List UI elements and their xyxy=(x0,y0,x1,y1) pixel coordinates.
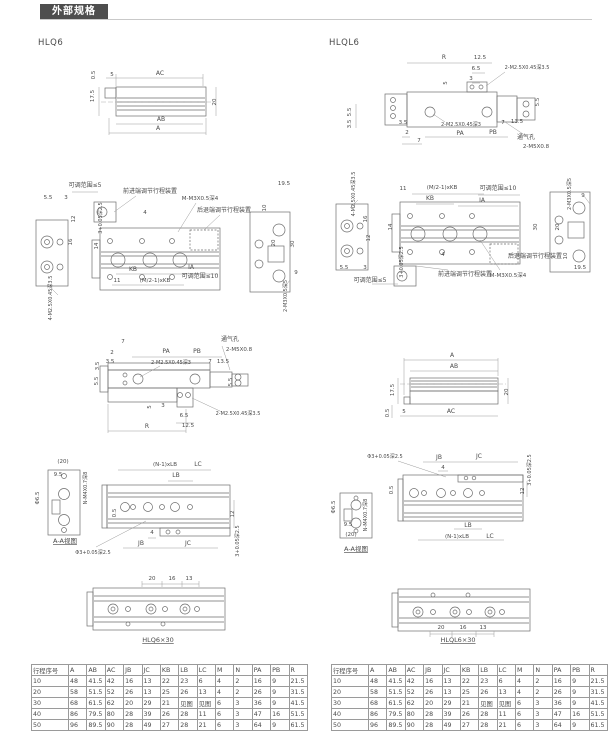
dim-label: 5 xyxy=(402,409,406,415)
dim-label: (M/2-1)xKB xyxy=(427,185,458,191)
dimension-table: 行程序号AABACJBJCKBLBLCMNPAPBR104841.5421613… xyxy=(31,664,308,731)
table-cell: 42 xyxy=(405,676,423,687)
table-cell: 2 xyxy=(234,687,252,698)
table-cell: 41.5 xyxy=(387,676,405,687)
dim-label: 2 xyxy=(405,130,409,136)
dim-label: 4 xyxy=(441,252,445,258)
dim-label: 20 xyxy=(438,625,445,631)
dim-label: 5.5 xyxy=(94,376,100,385)
dim-label: 可调范围≤5 xyxy=(354,276,387,284)
table-cell: 89.5 xyxy=(87,720,105,731)
table-cell: 20 xyxy=(124,698,142,709)
table-cell: 3 xyxy=(234,720,252,731)
hlq6-stroke30-view: 201613HLQ6×30 xyxy=(85,568,240,648)
dim-label: 5.5 xyxy=(347,107,353,116)
dim-label: KB xyxy=(426,195,434,202)
header-rule xyxy=(40,19,592,20)
dim-label: 3+0.05深2.5 xyxy=(398,246,405,277)
table-cell: 90 xyxy=(405,720,423,731)
dim-label: 3.5 xyxy=(399,120,408,126)
table-header-cell: JC xyxy=(142,665,160,676)
dim-label: Φ3+0.05深2.5 xyxy=(75,549,110,556)
dim-label: PB xyxy=(489,129,497,136)
table-cell: 22 xyxy=(160,676,178,687)
hlql6-side-view: AAB17.5200.55AC xyxy=(372,335,611,440)
hlql6-stroke30-view: 201613HLQL6×30 xyxy=(388,565,543,650)
dim-label: 4 xyxy=(441,465,445,471)
table-cell: 6 xyxy=(516,709,534,720)
table-cell: 39 xyxy=(442,709,460,720)
dim-label: 2-M3X0.5深5 xyxy=(282,280,289,312)
table-cell: 10 xyxy=(332,676,369,687)
table-cell: 10 xyxy=(32,676,69,687)
table-cell: 13 xyxy=(442,687,460,698)
dim-label: 7 xyxy=(501,120,505,126)
dim-label: 通气孔 xyxy=(517,133,535,141)
table-header-cell: JB xyxy=(124,665,142,676)
table-cell: 50 xyxy=(332,720,369,731)
table-header-cell: PB xyxy=(271,665,289,676)
table-cell: 68 xyxy=(369,698,387,709)
table-cell: 见图 xyxy=(179,698,197,709)
table-cell: 28 xyxy=(124,709,142,720)
dim-label: 5 xyxy=(147,405,153,409)
dim-label: 3 xyxy=(363,265,367,271)
table-cell: 21 xyxy=(197,720,215,731)
table-header-cell: 行程序号 xyxy=(332,665,369,676)
dim-label: 后退端调节行程装置 xyxy=(197,206,251,214)
dim-label: 9 xyxy=(294,270,298,276)
dim-label: 2-M2.5X0.45深3.5 xyxy=(505,64,550,71)
dim-label: 10 xyxy=(563,252,569,259)
table-cell: 49 xyxy=(442,720,460,731)
dim-label: 2 xyxy=(110,350,114,356)
table-cell: 6 xyxy=(216,720,234,731)
dim-label: PB xyxy=(193,348,201,355)
dim-label: 5.5 xyxy=(340,265,349,271)
table-cell: 96 xyxy=(69,720,87,731)
table-cell: 9 xyxy=(271,698,289,709)
table-cell: 48 xyxy=(369,676,387,687)
table-header-cell: AC xyxy=(105,665,123,676)
dim-label: 3+0.05深2.5 xyxy=(234,525,241,556)
dim-label: 可调范围≤10 xyxy=(480,184,517,192)
dim-label: 5.5 xyxy=(228,377,234,386)
table-cell: 4 xyxy=(516,687,534,698)
dim-label: AC xyxy=(156,70,164,77)
table-cell: 86 xyxy=(69,709,87,720)
dim-label: 20 xyxy=(149,576,156,582)
dim-label: JC xyxy=(475,453,482,460)
dim-label: Φ6.5 xyxy=(331,500,337,514)
dim-label: A-A视图 xyxy=(53,536,77,545)
dim-label: 13.5 xyxy=(217,359,230,365)
dim-label: 16 xyxy=(68,238,74,245)
table-cell: 3 xyxy=(534,709,552,720)
table-header-row: 行程序号AABACJBJCKBLBLCMNPAPBR xyxy=(332,665,608,676)
dim-label: R xyxy=(442,54,446,61)
table-row: 104841.5421613222364216921.5 xyxy=(32,676,308,687)
table-cell: 36 xyxy=(552,698,570,709)
dim-label: (N-1)xLB xyxy=(445,534,469,540)
table-cell: 21.5 xyxy=(289,676,308,687)
dim-label: 20 xyxy=(212,98,218,105)
table-header-cell: LC xyxy=(497,665,515,676)
table-cell: 9 xyxy=(571,720,589,731)
dim-label: 20 xyxy=(271,239,277,246)
dim-label: 17.5 xyxy=(390,383,396,396)
table-cell: 26 xyxy=(479,687,497,698)
dim-label: (N-1)xLB xyxy=(153,462,177,468)
table-cell: 64 xyxy=(252,720,270,731)
table-cell: 86 xyxy=(369,709,387,720)
dim-label: 4-M2.5X0.45深3.5 xyxy=(350,172,357,217)
dim-label: 0.5 xyxy=(389,485,395,494)
dim-label: 16 xyxy=(460,625,467,631)
table-cell: 52 xyxy=(105,687,123,698)
dim-label: 20 xyxy=(504,388,510,395)
table-cell: 9 xyxy=(271,720,289,731)
table-cell: 64 xyxy=(552,720,570,731)
table-cell: 21 xyxy=(460,698,478,709)
dim-label: 10 xyxy=(262,204,268,211)
table-cell: 6 xyxy=(516,698,534,709)
table-cell: 16 xyxy=(552,676,570,687)
table-cell: 28 xyxy=(124,720,142,731)
table-cell: 9 xyxy=(571,698,589,709)
dim-label: 13.5 xyxy=(511,119,524,125)
dim-label: 16 xyxy=(169,576,176,582)
table-header-cell: M xyxy=(216,665,234,676)
table-cell: 4 xyxy=(216,676,234,687)
dim-label: 19.5 xyxy=(278,181,291,187)
table-cell: 27 xyxy=(160,720,178,731)
dim-label: 12.5 xyxy=(182,423,195,429)
table-row: 408679.580283926281163471651.5 xyxy=(32,709,308,720)
table-cell: 52 xyxy=(405,687,423,698)
table-header-cell: PB xyxy=(571,665,589,676)
table-cell: 28 xyxy=(479,709,497,720)
dim-label: 4 xyxy=(143,210,147,216)
table-cell: 30 xyxy=(332,698,369,709)
table-cell: 62 xyxy=(105,698,123,709)
table-cell: 26 xyxy=(252,687,270,698)
dim-label: 9.5 xyxy=(344,522,353,528)
section-header: 外部规格 xyxy=(40,4,108,20)
table-cell: 25 xyxy=(160,687,178,698)
table-cell: 40 xyxy=(332,709,369,720)
hlq6-dimension-table: 行程序号AABACJBJCKBLBLCMNPAPBR104841.5421613… xyxy=(31,664,308,731)
table-cell: 13 xyxy=(142,676,160,687)
dim-label: IA xyxy=(479,197,486,204)
table-cell: 23 xyxy=(479,676,497,687)
dim-label: 16 xyxy=(363,215,369,222)
dim-label: 前进端调节行程装置 xyxy=(438,270,492,278)
table-header-cell: JC xyxy=(442,665,460,676)
table-cell: 41.5 xyxy=(589,698,608,709)
dim-label: 后退端调节行程装置 xyxy=(508,252,562,260)
dim-label: 6.5 xyxy=(180,413,189,419)
dim-label: JB xyxy=(435,454,442,461)
dim-label: N-M4X0.7深8 xyxy=(82,472,89,505)
table-cell: 61.5 xyxy=(589,720,608,731)
dim-label: 2-M3X0.5深5 xyxy=(566,178,573,210)
dim-label: (M/2-1)xKB xyxy=(140,278,171,284)
table-cell: 3 xyxy=(234,698,252,709)
table-cell: 16 xyxy=(571,709,589,720)
dim-label: 4 xyxy=(150,530,154,536)
table-cell: 51.5 xyxy=(589,709,608,720)
table-header-cell: PA xyxy=(552,665,570,676)
table-cell: 26 xyxy=(552,687,570,698)
table-header-row: 行程序号AABACJBJCKBLBLCMNPAPBR xyxy=(32,665,308,676)
table-cell: 27 xyxy=(460,720,478,731)
table-cell: 6 xyxy=(516,720,534,731)
dim-label: JC xyxy=(184,540,191,547)
dim-label: 可调范围≤10 xyxy=(182,272,219,280)
table-cell: 见图 xyxy=(197,698,215,709)
table-header-cell: A xyxy=(69,665,87,676)
dim-label: 7 xyxy=(208,359,212,365)
hlql6-dimension-table: 行程序号AABACJBJCKBLBLCMNPAPBR104841.5421613… xyxy=(331,664,608,731)
dim-label: LC xyxy=(194,461,202,468)
table-cell: 23 xyxy=(179,676,197,687)
dim-label: 5.5 xyxy=(535,97,541,106)
dim-label: 3 xyxy=(469,76,473,82)
dim-label: HLQL6×30 xyxy=(440,636,475,644)
dim-label: 4-M2.5X0.45深3.5 xyxy=(47,276,54,321)
dim-label: 13 xyxy=(186,576,193,582)
table-cell: 20 xyxy=(332,687,369,698)
table-header-cell: LC xyxy=(197,665,215,676)
table-header-cell: AB xyxy=(387,665,405,676)
dim-label: A xyxy=(450,352,455,359)
table-header-cell: KB xyxy=(160,665,178,676)
dim-label: 3+0.05深2.5 xyxy=(526,454,533,485)
dim-label: 5.5 xyxy=(44,195,53,201)
dim-label: JB xyxy=(137,540,144,547)
dim-label: 12.5 xyxy=(474,55,487,61)
table-header-cell: N xyxy=(534,665,552,676)
dim-label: 5 xyxy=(110,72,114,78)
dim-label: 12 xyxy=(520,488,526,495)
table-row: 509689.59028492728216364961.5 xyxy=(332,720,608,731)
dim-label: HLQ6×30 xyxy=(142,636,173,644)
table-cell: 3 xyxy=(234,709,252,720)
dim-label: 2-M5X0.8 xyxy=(226,347,253,353)
dim-label: A-A视图 xyxy=(344,544,368,553)
table-cell: 80 xyxy=(105,709,123,720)
section-header-label: 外部规格 xyxy=(52,6,96,17)
dim-label: Φ3+0.05深2.5 xyxy=(367,453,402,460)
hlq6-section-view: (20)9.5Φ6.5N-M4X0.7深8A-A视图(N-1)xLBLCLB0.… xyxy=(28,446,263,568)
dim-label: 2-M2.5X0.45深3 xyxy=(151,359,191,366)
table-cell: 47 xyxy=(252,709,270,720)
table-cell: 21.5 xyxy=(589,676,608,687)
model-title-left: HLQ6 xyxy=(38,38,63,48)
dim-label: 5 xyxy=(443,81,449,85)
table-cell: 89.5 xyxy=(387,720,405,731)
dim-label: 14 xyxy=(94,242,100,249)
table-cell: 13 xyxy=(497,687,515,698)
dim-label: KB xyxy=(129,266,137,273)
dim-label: 19.5 xyxy=(574,265,587,271)
table-cell: 2 xyxy=(534,676,552,687)
dim-label: 11 xyxy=(400,186,407,192)
table-cell: 6 xyxy=(216,709,234,720)
table-row: 509689.59028492728216364961.5 xyxy=(32,720,308,731)
dim-label: A xyxy=(156,125,161,132)
table-header-cell: PA xyxy=(252,665,270,676)
dim-label: PA xyxy=(456,130,464,137)
table-cell: 31.5 xyxy=(289,687,308,698)
dim-label: 3+0.05深2.5 xyxy=(97,202,104,233)
dim-label: 30 xyxy=(533,223,539,230)
table-cell: 13 xyxy=(442,676,460,687)
table-cell: 68 xyxy=(69,698,87,709)
table-header-cell: R xyxy=(589,665,608,676)
hlql6-plan-view: 4-M2.5X0.45深3.511(M/2-1)xKBKB可调范围≤10IA2-… xyxy=(328,170,611,322)
table-cell: 2 xyxy=(534,687,552,698)
table-header-cell: M xyxy=(516,665,534,676)
table-header-cell: LB xyxy=(179,665,197,676)
dim-label: 30 xyxy=(290,240,296,247)
table-cell: 29 xyxy=(442,698,460,709)
dim-label: 3 xyxy=(64,195,68,201)
dim-label: 7 xyxy=(417,138,421,144)
table-cell: 62 xyxy=(405,698,423,709)
table-cell: 47 xyxy=(552,709,570,720)
table-cell: 51.5 xyxy=(289,709,308,720)
table-cell: 见图 xyxy=(479,698,497,709)
table-cell: 16 xyxy=(271,709,289,720)
table-cell: 50 xyxy=(32,720,69,731)
dim-label: 9.5 xyxy=(54,472,63,478)
dim-label: 0.5 xyxy=(112,508,118,517)
dim-label: AB xyxy=(157,116,165,123)
dim-label: N-M4X0.7深8 xyxy=(362,499,369,532)
dim-label: 13 xyxy=(480,625,487,631)
table-cell: 13 xyxy=(197,687,215,698)
dim-label: 11 xyxy=(114,278,121,284)
table-cell: 6 xyxy=(497,676,515,687)
hlq6-bottom-view: 72PAPB通气孔2-M5X0.83.52-M2.5X0.45深3713.53.… xyxy=(72,330,317,445)
table-cell: 3 xyxy=(534,698,552,709)
dim-label: 14 xyxy=(388,223,394,230)
dim-label: LC xyxy=(486,533,494,540)
dim-label: PA xyxy=(162,348,170,355)
dim-label: 6.5 xyxy=(472,66,481,72)
table-cell: 6 xyxy=(216,698,234,709)
table-cell: 3 xyxy=(534,720,552,731)
table-header-cell: N xyxy=(234,665,252,676)
dim-label: 7 xyxy=(121,339,125,345)
table-row: 408679.580283926281163471651.5 xyxy=(332,709,608,720)
table-cell: 31.5 xyxy=(589,687,608,698)
dim-label: 3.5 xyxy=(347,119,353,128)
hlq6-plan-view: 可调范围≤55.53前进端调节行程装置M-M3X0.5深4后退端调节行程装置19… xyxy=(28,170,313,322)
table-header-cell: JB xyxy=(424,665,442,676)
table-cell: 16 xyxy=(424,676,442,687)
table-cell: 61.5 xyxy=(387,698,405,709)
table-row: 104841.5421613222364216921.5 xyxy=(332,676,608,687)
table-cell: 26 xyxy=(460,709,478,720)
table-cell: 9 xyxy=(571,687,589,698)
dim-label: 9 xyxy=(581,193,585,199)
table-cell: 20 xyxy=(424,698,442,709)
dim-label: 3 xyxy=(161,403,165,409)
table-cell: 30 xyxy=(32,698,69,709)
table-cell: 48 xyxy=(69,676,87,687)
table-cell: 28 xyxy=(479,720,497,731)
dim-label: LB xyxy=(464,522,471,529)
table-header-cell: 行程序号 xyxy=(32,665,69,676)
table-cell: 61.5 xyxy=(289,720,308,731)
table-cell: 16 xyxy=(252,676,270,687)
table-cell: 80 xyxy=(405,709,423,720)
dim-label: 2-M2.5X0.45深3 xyxy=(441,121,481,128)
table-cell: 20 xyxy=(32,687,69,698)
table-cell: 2 xyxy=(234,676,252,687)
dim-label: 2-M5X0.8 xyxy=(523,144,550,150)
table-header-cell: LB xyxy=(479,665,497,676)
table-cell: 11 xyxy=(497,709,515,720)
dim-label: (20) xyxy=(57,459,68,465)
hlql6-top-view: R12.56.532-M2.5X0.45深3.555.53.53.5272-M2… xyxy=(340,42,585,157)
dim-label: 0.5 xyxy=(385,408,391,417)
dim-label: 12 xyxy=(71,216,77,223)
table-cell: 42 xyxy=(105,676,123,687)
dim-label: 前进端调节行程装置 xyxy=(123,187,177,195)
table-cell: 49 xyxy=(142,720,160,731)
table-header-cell: A xyxy=(369,665,387,676)
table-cell: 21 xyxy=(497,720,515,731)
dim-label: 20 xyxy=(555,223,561,230)
table-cell: 39 xyxy=(142,709,160,720)
table-cell: 26 xyxy=(424,687,442,698)
dim-label: 12 xyxy=(366,235,372,242)
dim-label: IA xyxy=(188,264,195,271)
table-cell: 6 xyxy=(197,676,215,687)
table-cell: 4 xyxy=(516,676,534,687)
table-cell: 96 xyxy=(369,720,387,731)
table-cell: 90 xyxy=(105,720,123,731)
table-cell: 9 xyxy=(571,676,589,687)
table-cell: 26 xyxy=(179,687,197,698)
table-cell: 9 xyxy=(271,687,289,698)
dim-label: 2-M2.5X0.45深3.5 xyxy=(216,410,261,417)
table-cell: 41.5 xyxy=(87,676,105,687)
table-header-cell: KB xyxy=(460,665,478,676)
table-cell: 见图 xyxy=(497,698,515,709)
table-cell: 40 xyxy=(32,709,69,720)
table-cell: 28 xyxy=(179,720,197,731)
table-header-cell: AC xyxy=(405,665,423,676)
table-cell: 28 xyxy=(424,720,442,731)
dim-label: LB xyxy=(172,472,179,479)
dimension-table: 行程序号AABACJBJCKBLBLCMNPAPBR104841.5421613… xyxy=(331,664,608,731)
dim-label: AB xyxy=(450,363,458,370)
table-cell: 58 xyxy=(369,687,387,698)
table-cell: 61.5 xyxy=(87,698,105,709)
table-cell: 11 xyxy=(197,709,215,720)
catalog-page: 外部规格 HLQ6 HLQL6 AC50.517.520ABA xyxy=(0,0,611,741)
dim-label: 可调范围≤5 xyxy=(69,181,102,189)
table-cell: 26 xyxy=(124,687,142,698)
table-cell: 9 xyxy=(271,676,289,687)
table-header-cell: AB xyxy=(87,665,105,676)
table-row: 306861.562202921见图见图6336941.5 xyxy=(32,698,308,709)
